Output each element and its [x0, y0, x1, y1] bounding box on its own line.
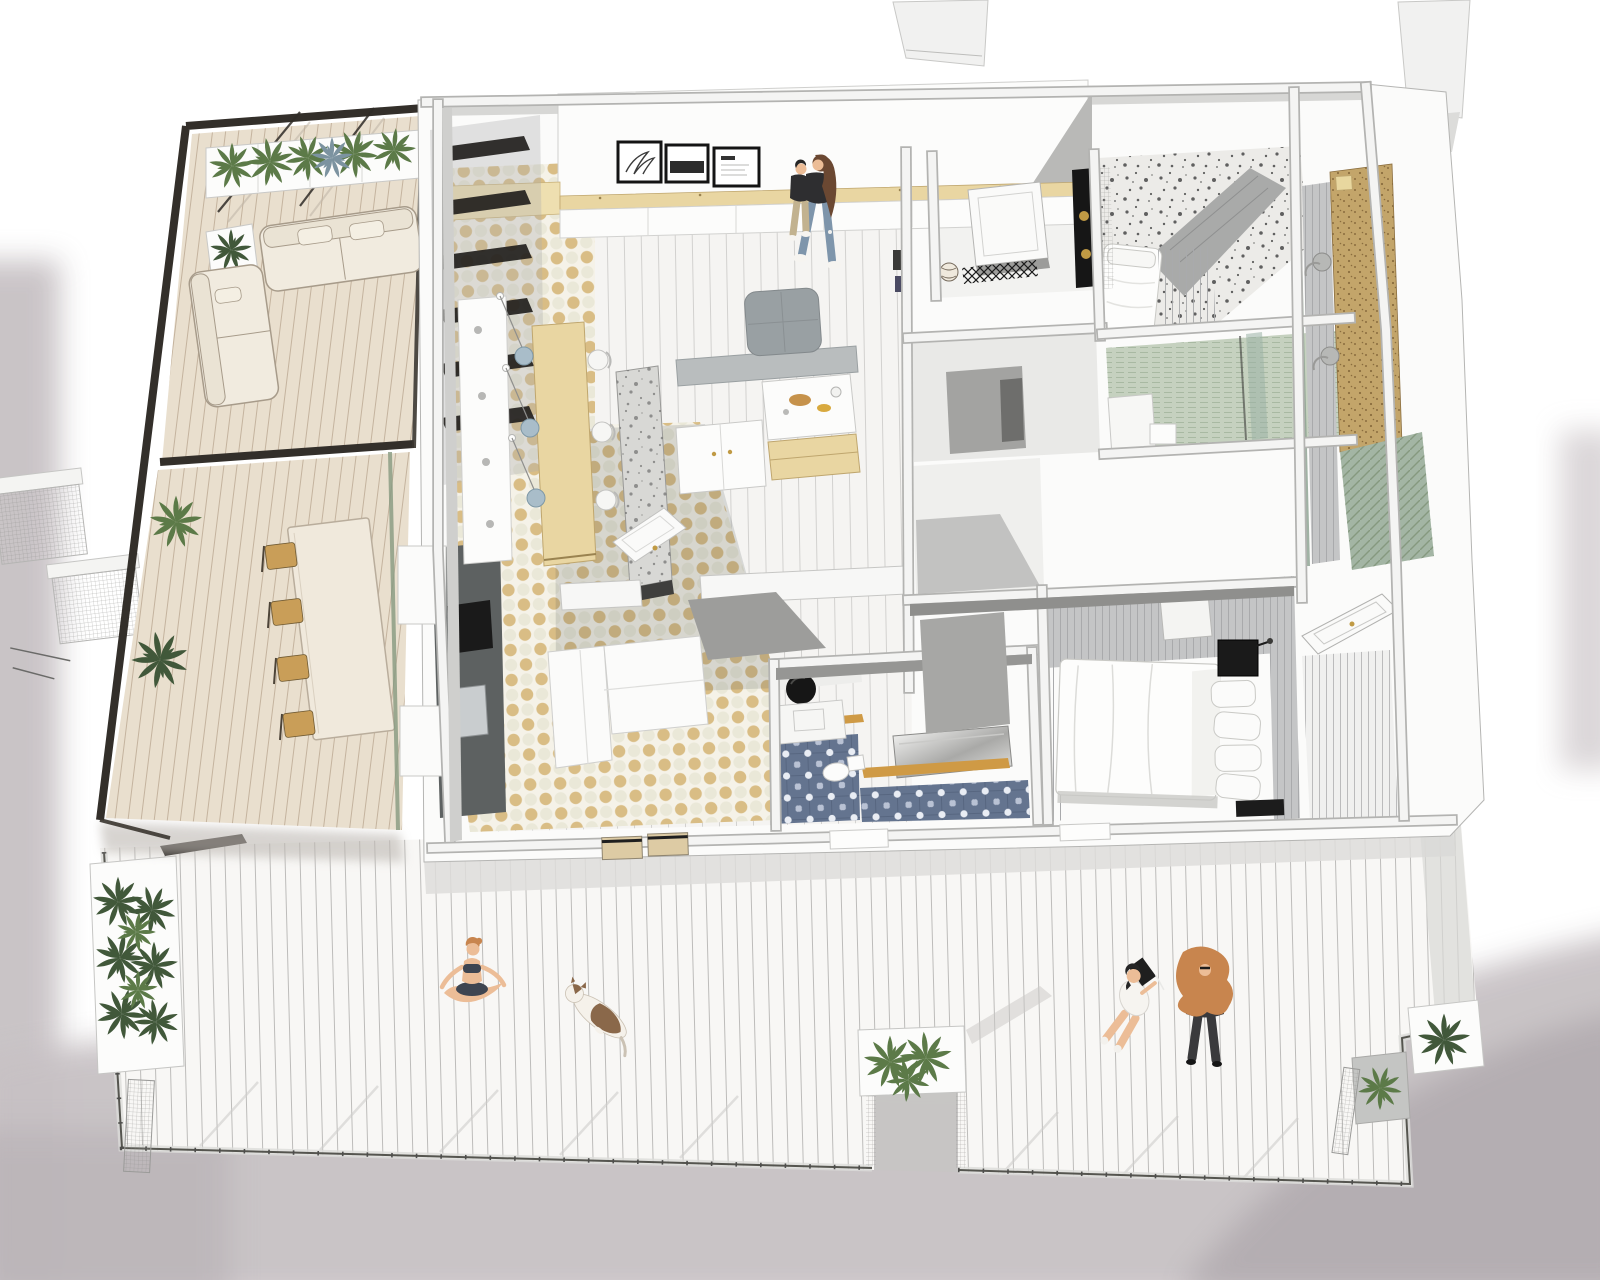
brass-knob-1[interactable] [1079, 211, 1089, 221]
cupboard-knob-2[interactable] [728, 450, 732, 454]
apartment [398, 80, 1484, 862]
bath-tile-motif-1 [772, 734, 860, 824]
corner-wedge-2 [920, 612, 1010, 734]
food-cup [783, 409, 789, 415]
child-leg-1 [793, 202, 797, 234]
yoga-bra [463, 964, 481, 973]
side-counter [458, 296, 512, 564]
balcony-mesh [0, 484, 87, 564]
art-frame-3 [714, 148, 759, 186]
mom-sneaker-1 [793, 254, 807, 262]
food-bread [789, 394, 811, 406]
mid-wall-left [560, 580, 642, 610]
facade-notch-2 [1060, 823, 1111, 841]
pendant-globe-3 [527, 489, 545, 507]
parapet-center [893, 0, 988, 66]
vanity [776, 700, 846, 744]
child-shoe-1 [787, 235, 797, 241]
stander-shoe-1 [1186, 1059, 1196, 1065]
mom-face [813, 160, 824, 171]
cupboard [676, 420, 766, 494]
bed-end-unit [1236, 799, 1285, 817]
toilet-tank [847, 755, 865, 771]
stander-hair [1176, 946, 1233, 1016]
yoga-bun [476, 938, 482, 944]
nightstand [1218, 640, 1258, 676]
floor-plan-render [0, 0, 1600, 1280]
stander-leg-2 [1211, 1016, 1216, 1060]
master-bed [1055, 659, 1265, 810]
stander-leg-1 [1192, 1016, 1198, 1058]
stander-shoe-2 [1212, 1061, 1222, 1067]
wood-drawers [768, 434, 860, 480]
balcony-plywood-square [1336, 175, 1353, 190]
child-leg-2 [805, 204, 806, 230]
bed2-panel-wall [1158, 246, 1216, 334]
yoga-shorts [456, 982, 488, 996]
stander-face [1199, 964, 1211, 976]
facade-notch-1 [830, 829, 889, 849]
green-bath-fixture [1150, 424, 1176, 444]
roof-deck [85, 812, 1484, 1186]
mid-room-opening [1000, 378, 1024, 442]
front-door-knob[interactable] [1350, 622, 1355, 627]
pendant-globe-1 [515, 347, 533, 365]
nightstand-lamp-shade [1267, 638, 1273, 644]
sofa-chaise [548, 646, 612, 768]
railing-mesh-column [124, 1079, 155, 1172]
mom-sneaker-2 [827, 261, 841, 269]
open-door-knob[interactable] [653, 546, 658, 551]
art-frame-1 [618, 142, 661, 182]
child-shoe-2 [801, 231, 811, 237]
mom-knee-rip [828, 230, 832, 234]
child-torso [790, 174, 809, 201]
food-counter [762, 374, 856, 440]
food-bowl [817, 404, 831, 412]
hall-floor-base [1302, 650, 1398, 822]
art-print-2 [670, 161, 704, 173]
pendant-globe-2 [521, 419, 539, 437]
brass-knob-2[interactable] [1081, 249, 1091, 259]
wash-right [1560, 430, 1600, 770]
cupboard-knob-1[interactable] [712, 452, 716, 456]
art-print-3-title [721, 156, 735, 160]
white-box-lower [400, 706, 444, 776]
food-plate [831, 387, 841, 397]
ottoman [744, 287, 822, 356]
